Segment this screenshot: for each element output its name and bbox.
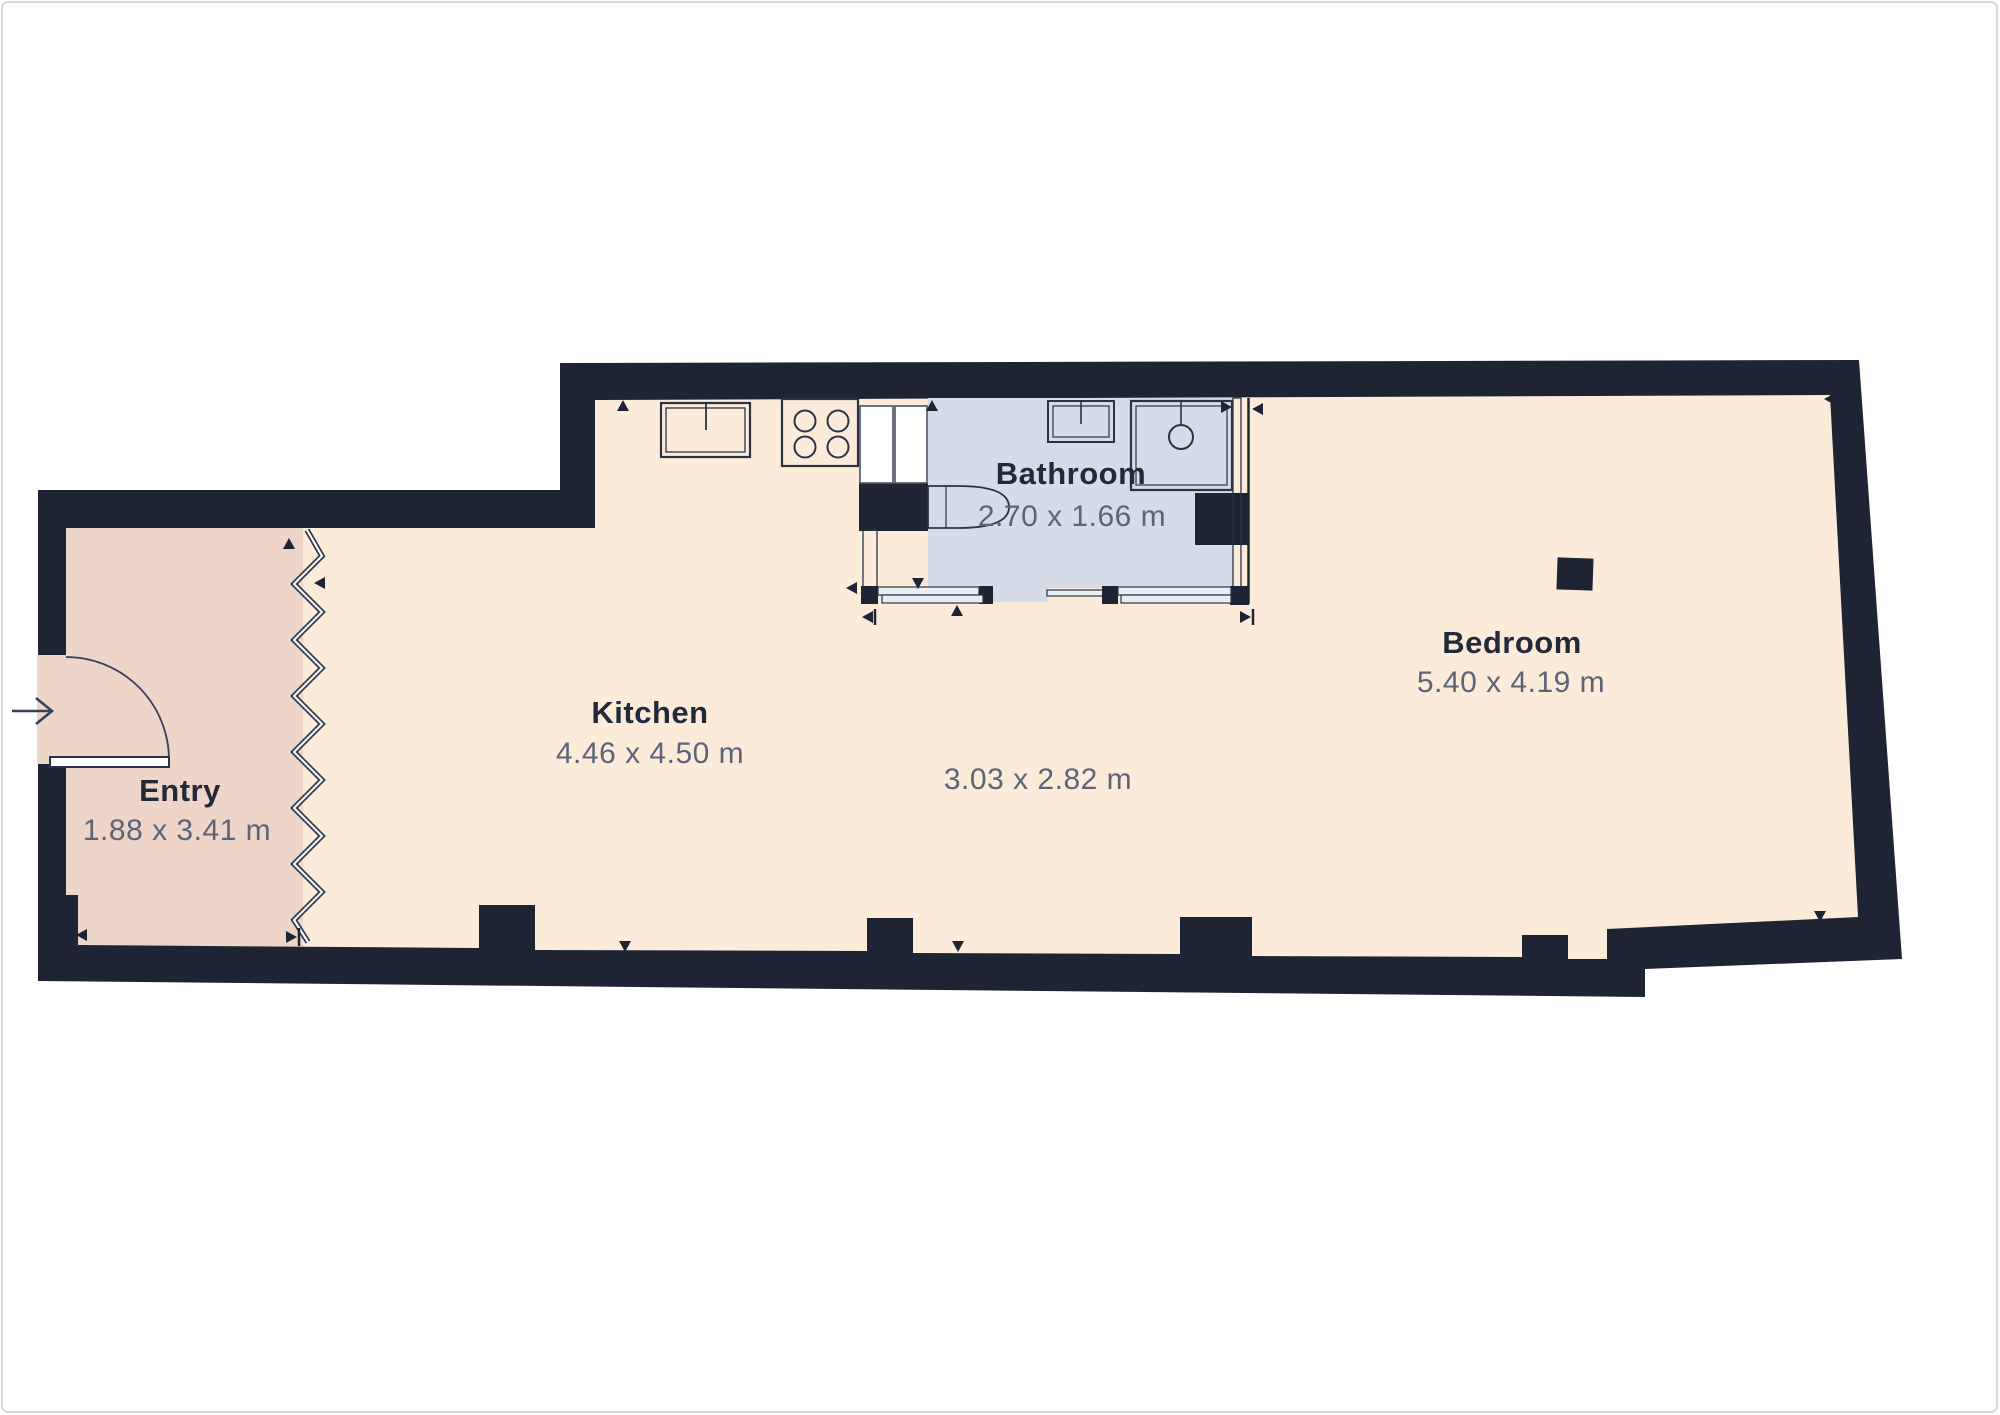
door-panel [882, 595, 983, 603]
door-panel [878, 587, 979, 595]
room-label-bedroom: Bedroom [1442, 625, 1582, 660]
open-door-leaf [1047, 590, 1103, 596]
door-panel [1118, 587, 1231, 595]
bathroom-door-threshold [992, 588, 1048, 602]
door-jamb [1102, 586, 1118, 604]
room-dim-kitchen: 4.46 x 4.50 m [556, 737, 744, 770]
door-jamb [1230, 586, 1249, 605]
cabinet-left [860, 406, 893, 483]
floorplan-canvas: Entry 1.88 x 3.41 m Kitchen 4.46 x 4.50 … [0, 0, 2000, 1415]
door-jamb [861, 586, 878, 604]
room-dim-bathroom: 2.70 x 1.66 m [978, 500, 1166, 533]
structural-column [1556, 557, 1593, 590]
bathroom-wall-left-block [859, 483, 928, 531]
sliding-door-right [1102, 586, 1249, 605]
tall-cabinet [860, 406, 927, 483]
room-label-bathroom: Bathroom [996, 456, 1146, 491]
room-label-kitchen: Kitchen [591, 695, 708, 730]
room-label-entry: Entry [139, 773, 221, 808]
door-leaf [50, 757, 169, 767]
door-panel [1121, 595, 1231, 603]
room-dim-entry: 1.88 x 3.41 m [83, 814, 271, 847]
floor-entry [66, 528, 303, 947]
room-dim-bedroom: 5.40 x 4.19 m [1417, 666, 1605, 699]
cabinet-right [895, 406, 927, 483]
floorplan-page: Entry 1.88 x 3.41 m Kitchen 4.46 x 4.50 … [0, 0, 2000, 1415]
room-dim-hallway: 3.03 x 2.82 m [944, 763, 1132, 796]
